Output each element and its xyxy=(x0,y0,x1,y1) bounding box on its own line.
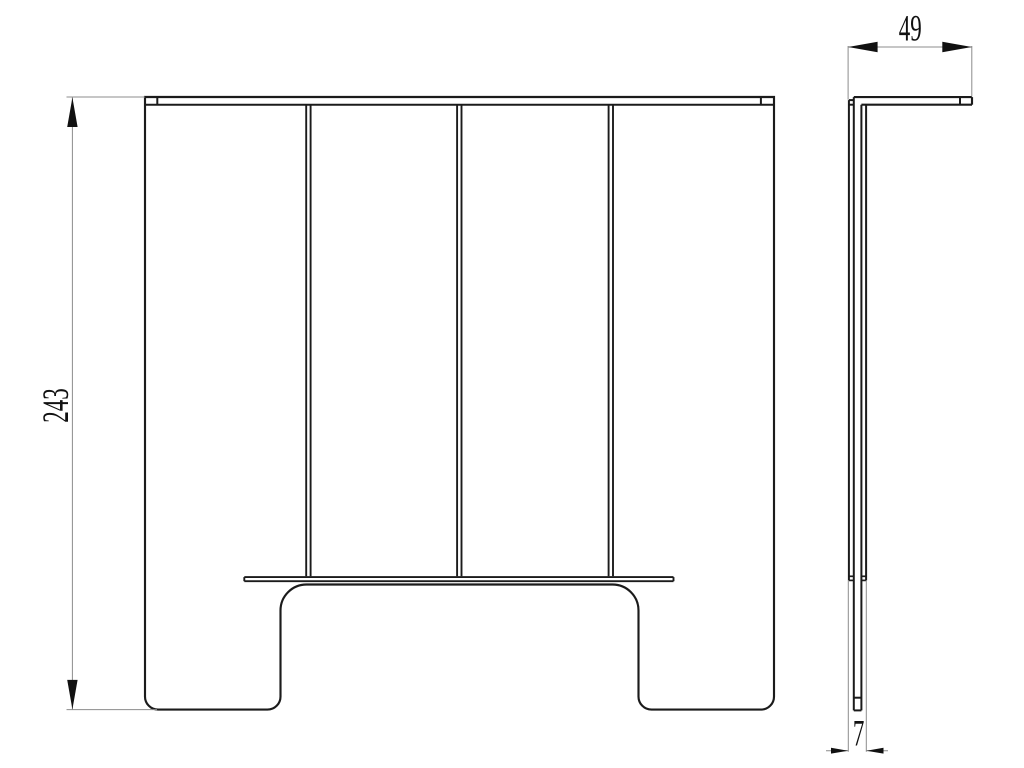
svg-text:49: 49 xyxy=(899,8,922,49)
svg-text:7: 7 xyxy=(853,713,864,754)
svg-text:243: 243 xyxy=(36,388,77,422)
